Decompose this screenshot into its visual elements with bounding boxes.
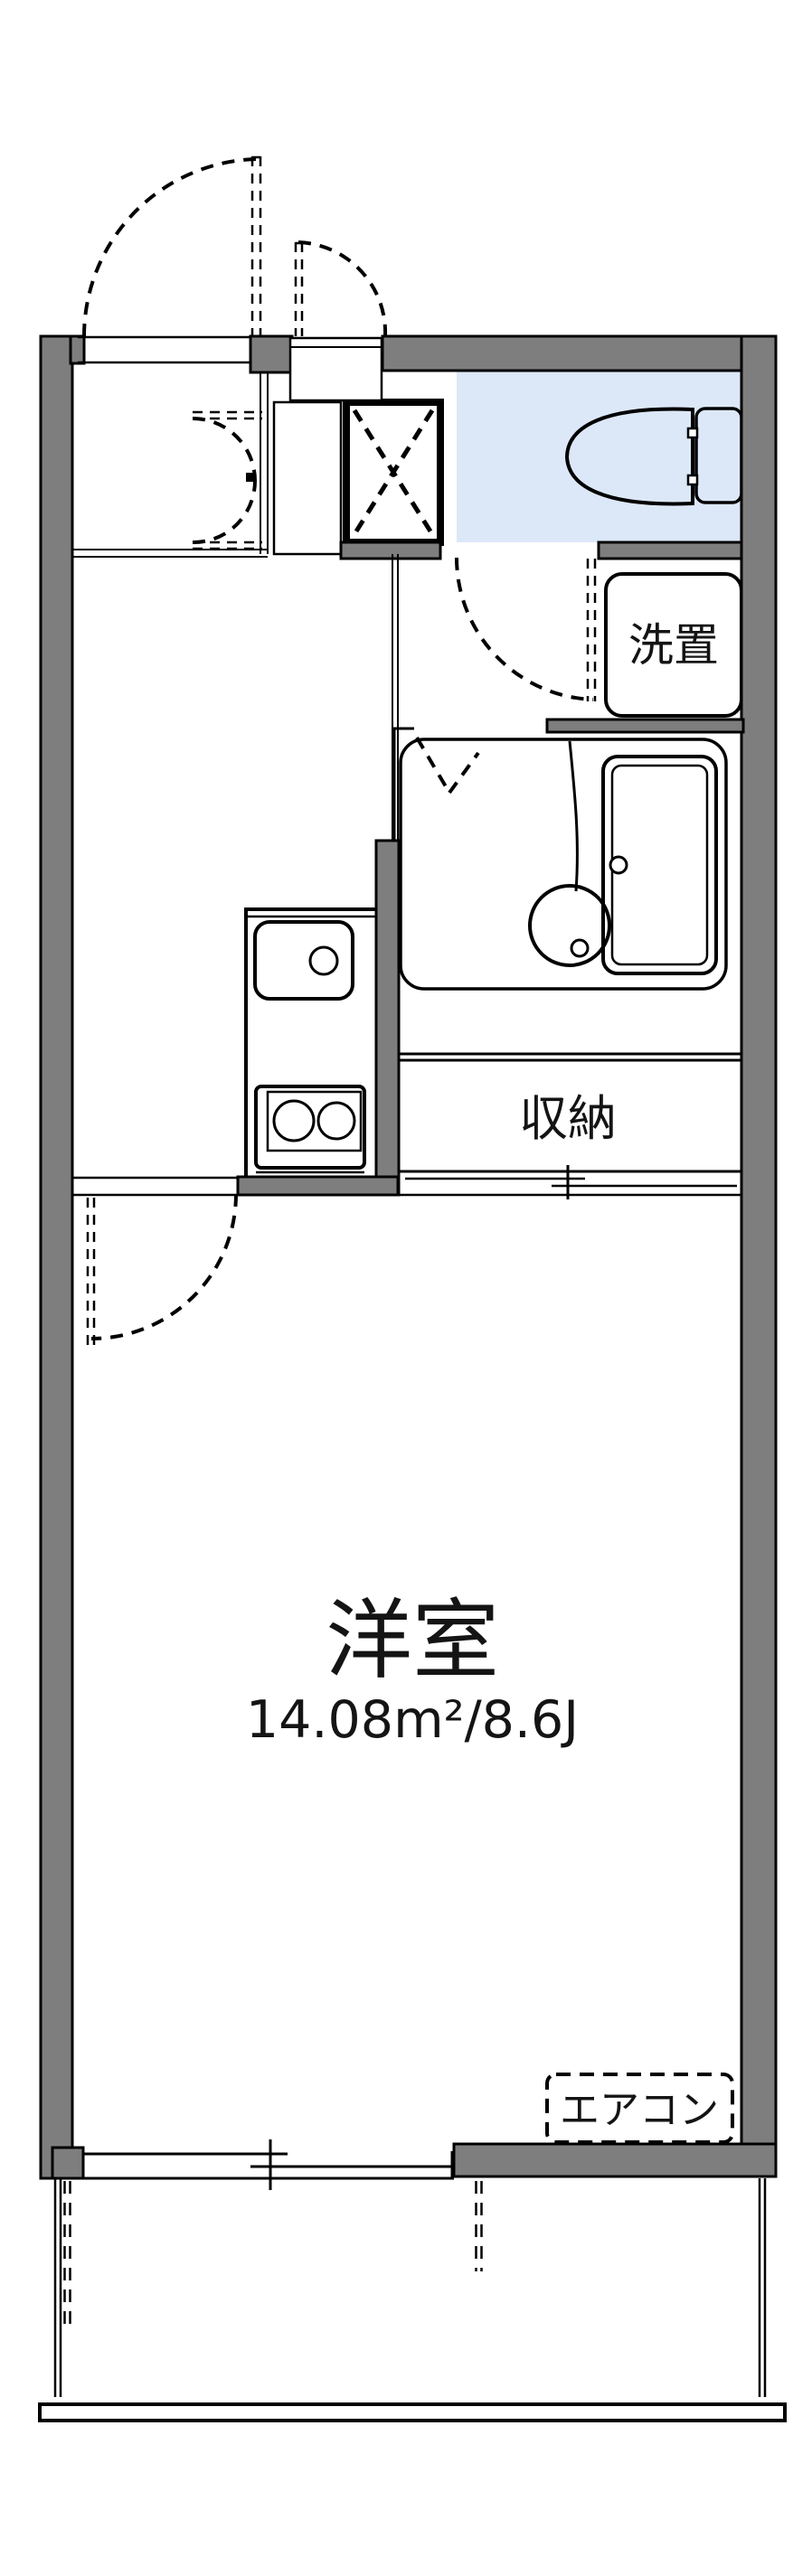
wall-top [382, 336, 776, 371]
toilet-room [457, 371, 741, 542]
balcony-rail [40, 2404, 785, 2421]
aircon-label: エアコン [560, 2087, 719, 2133]
wall-right [741, 336, 776, 2176]
wall-entry-pier [250, 336, 292, 372]
washer-space-label: 洗置 [628, 619, 719, 672]
main-room-label: 洋室 [326, 1590, 499, 1691]
wall-bottom-left-pier [52, 2148, 83, 2178]
wall-bath-top [547, 719, 743, 732]
toilet-hinge-top [688, 428, 697, 437]
wall-left [41, 336, 72, 2178]
bath-door-knob [610, 857, 627, 873]
floor-plan-page: エアコン 洗置 収納 洋室 14.08m²/8.6J [0, 0, 812, 2576]
wall-bottom-right [454, 2144, 776, 2176]
toilet-hinge-bottom [688, 475, 697, 484]
wall-top-left-stub [71, 336, 84, 363]
closet-door-handle [246, 473, 255, 482]
wall-kitchen-bottom [238, 1177, 398, 1195]
wall-kitchen-side [376, 841, 399, 1195]
wall-under-toilet [599, 542, 741, 559]
storage-label: 収納 [519, 1090, 617, 1147]
floor-plan: エアコン 洗置 収納 洋室 14.08m²/8.6J [0, 0, 812, 2576]
aircon: エアコン [547, 2074, 732, 2142]
wall-under-pipe-space [341, 542, 440, 559]
main-room-area: 14.08m²/8.6J [246, 1690, 579, 1750]
